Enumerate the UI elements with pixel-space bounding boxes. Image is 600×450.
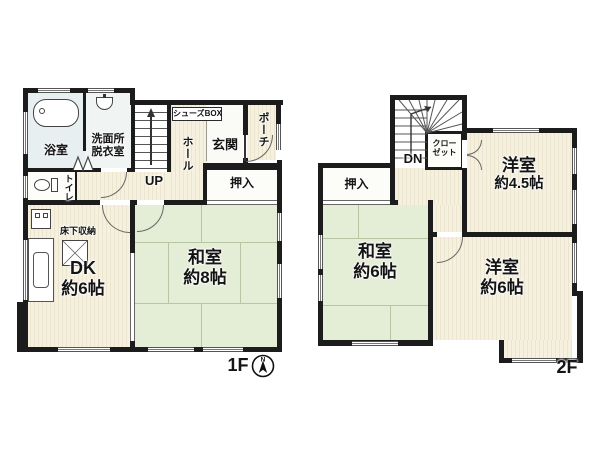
label-dk-line2: 約6帖 (43, 279, 123, 299)
label-washitsu6-line2: 約6帖 (335, 262, 415, 282)
tatami-line (201, 303, 202, 347)
window (203, 347, 243, 352)
label-washitsu6-line1: 和室 (335, 242, 415, 262)
label-dk-line1: DK (43, 258, 123, 279)
stair-arrow-1f (147, 108, 155, 117)
label-yoshitsu6-line1: 洋室 (462, 258, 542, 278)
window (512, 358, 556, 363)
tatami-line (135, 242, 277, 243)
wall (428, 200, 433, 345)
window (318, 235, 323, 269)
wall (75, 172, 77, 200)
window (38, 88, 70, 93)
window (318, 275, 323, 301)
window (148, 347, 194, 352)
label-underfloor: 床下収納 (50, 226, 106, 237)
tatami-line (201, 205, 202, 242)
wall (577, 291, 583, 363)
label-up: UP (139, 173, 169, 188)
window (23, 112, 28, 154)
stove-burner-icon (43, 213, 48, 218)
label-hall: ホール (180, 124, 193, 184)
bathtub-drain-icon (39, 108, 45, 114)
room-yoshitsu-6-step (504, 340, 572, 358)
window (572, 243, 577, 283)
stair-path-1f (150, 117, 152, 165)
shoes-box-label: シューズBOX (172, 107, 222, 121)
label-dn: DN (399, 151, 427, 166)
wall (318, 163, 395, 168)
fusuma-oshiire-1f (207, 200, 277, 205)
sink-tap-icon (103, 94, 106, 98)
label-oshiire-1f: 押入 (222, 176, 262, 190)
label-washitsu-6: 和室 約6帖 (335, 242, 415, 282)
label-entrance: 玄関 (207, 137, 243, 152)
window (23, 176, 28, 198)
wall (203, 163, 207, 200)
tatami-line (135, 303, 277, 304)
window (572, 148, 577, 174)
floorplan-canvas: 浴室 洗面所 脱衣室 シューズBOX ホール 玄関 ポーチ UP 押入 トイレ … (0, 0, 600, 450)
label-washitsu8-line2: 約8帖 (165, 268, 245, 288)
window (493, 128, 539, 133)
tatami-line (390, 305, 391, 340)
wall (243, 100, 248, 135)
toilet-tank-icon (51, 178, 58, 192)
fusuma-oshiire-2f (323, 200, 390, 205)
label-yoshitsu45-line2: 約4.5帖 (479, 176, 559, 193)
window (276, 124, 281, 150)
label-oshiire-2f: 押入 (332, 177, 381, 191)
stove-burner-icon (35, 213, 40, 218)
label-bath: 浴室 (36, 143, 76, 157)
wall (572, 291, 583, 296)
wall (130, 100, 283, 105)
label-yoshitsu-45: 洋室 約4.5帖 (479, 156, 559, 193)
wall (130, 341, 135, 352)
window (352, 341, 398, 346)
window (88, 88, 114, 93)
label-floor2: 2F (552, 357, 582, 378)
tatami-line (358, 205, 359, 238)
label-yoshitsu45-line1: 洋室 (479, 156, 559, 176)
tatami-line (323, 305, 428, 306)
wall (17, 302, 23, 352)
label-toilet: トイレ (63, 172, 74, 202)
stove-icon (31, 209, 51, 229)
wall (203, 163, 282, 170)
label-dk: DK 約6帖 (43, 258, 123, 299)
wall (276, 100, 281, 124)
label-washroom-line1: 洗面所 (82, 133, 134, 146)
wall (277, 160, 282, 352)
label-washitsu-8: 和室 約8帖 (165, 248, 245, 288)
label-closet-line2: ゼット (425, 148, 464, 157)
compass-icon: N (250, 352, 276, 378)
window (277, 264, 282, 298)
label-porch: ポーチ (256, 107, 269, 153)
window (58, 347, 110, 352)
label-yoshitsu-6: 洋室 約6帖 (462, 258, 542, 298)
label-washroom: 洗面所 脱衣室 (82, 133, 134, 159)
tatami-line (323, 238, 428, 239)
window (572, 190, 577, 224)
label-washroom-line2: 脱衣室 (82, 146, 134, 159)
label-closet: クロー ゼット (425, 139, 464, 158)
wall (130, 205, 135, 253)
label-yoshitsu6-line2: 約6帖 (462, 278, 542, 298)
label-washitsu8-line1: 和室 (165, 248, 245, 268)
fusuma-dk-washitsu (130, 253, 135, 341)
label-floor1: 1F (224, 355, 252, 376)
toilet-bowl-icon (34, 179, 50, 191)
window (277, 213, 282, 241)
wall (167, 105, 171, 172)
